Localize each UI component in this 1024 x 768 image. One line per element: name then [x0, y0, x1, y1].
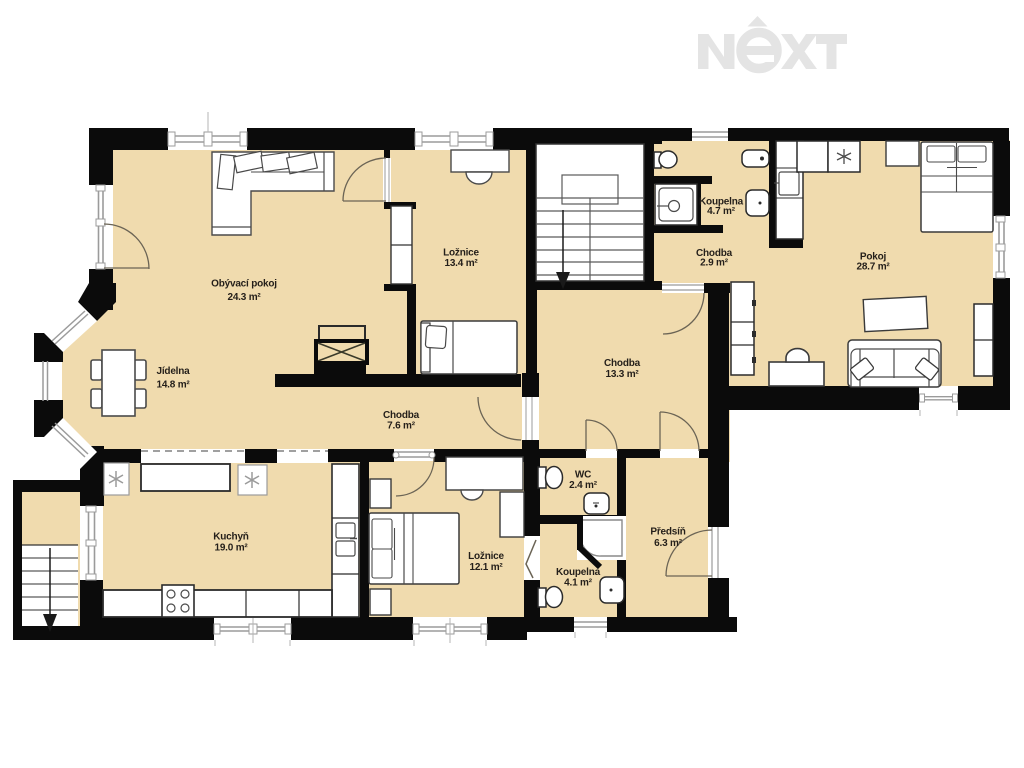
svg-text:Ložnice: Ložnice	[443, 248, 479, 259]
svg-text:2.4 m²: 2.4 m²	[569, 480, 598, 491]
svg-text:Předsíň: Předsíň	[650, 527, 685, 538]
svg-text:Ložnice: Ložnice	[468, 551, 504, 562]
svg-text:Jídelna: Jídelna	[156, 366, 190, 377]
svg-text:28.7 m²: 28.7 m²	[856, 262, 890, 273]
svg-text:Chodba: Chodba	[383, 410, 420, 421]
svg-text:13.3 m²: 13.3 m²	[605, 369, 639, 380]
svg-text:4.1 m²: 4.1 m²	[564, 578, 593, 589]
svg-text:4.7 m²: 4.7 m²	[707, 206, 736, 217]
svg-text:19.0 m²: 19.0 m²	[214, 543, 248, 554]
svg-text:14.8 m²: 14.8 m²	[156, 380, 190, 391]
svg-text:WC: WC	[575, 470, 591, 481]
svg-text:12.1 m²: 12.1 m²	[469, 562, 503, 573]
svg-text:Obývací pokoj: Obývací pokoj	[211, 279, 277, 290]
svg-text:13.4 m²: 13.4 m²	[444, 258, 478, 269]
svg-text:Koupelna: Koupelna	[556, 567, 601, 578]
svg-text:2.9 m²: 2.9 m²	[700, 258, 729, 269]
svg-text:6.3 m²: 6.3 m²	[654, 538, 683, 549]
svg-text:24.3 m²: 24.3 m²	[227, 292, 261, 303]
svg-text:7.6 m²: 7.6 m²	[387, 421, 416, 432]
svg-text:Kuchyň: Kuchyň	[213, 532, 249, 543]
svg-text:Chodba: Chodba	[604, 358, 641, 369]
